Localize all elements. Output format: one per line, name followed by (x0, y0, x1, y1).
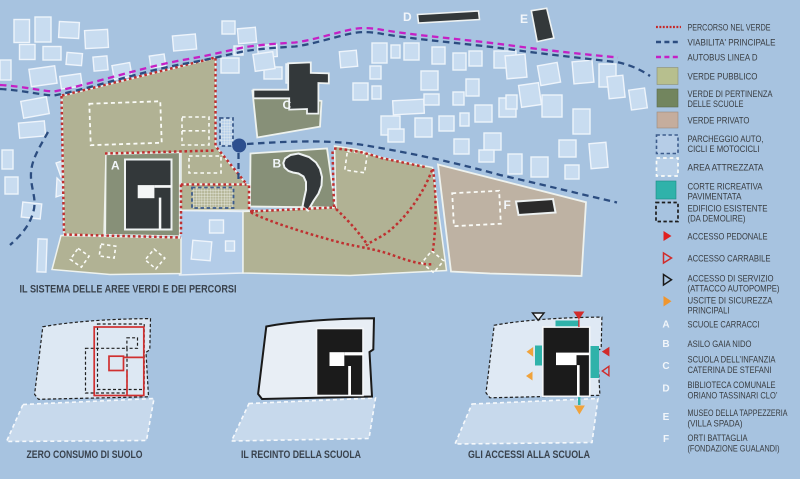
svg-text:E: E (663, 412, 670, 423)
svg-text:F: F (663, 434, 669, 445)
svg-text:(DA DEMOLIRE): (DA DEMOLIRE) (688, 214, 746, 224)
svg-text:(FONDAZIONE GUALANDI): (FONDAZIONE GUALANDI) (688, 444, 780, 454)
svg-text:F: F (504, 198, 511, 212)
svg-text:E: E (520, 12, 528, 26)
svg-text:IL RECINTO DELLA SCUOLA: IL RECINTO DELLA SCUOLA (241, 449, 361, 461)
svg-text:ORIANO TASSINARI CLO’: ORIANO TASSINARI CLO’ (688, 391, 778, 401)
svg-text:CORTE RICREATIVA: CORTE RICREATIVA (688, 182, 763, 192)
svg-text:D: D (403, 10, 412, 24)
svg-text:D: D (662, 384, 669, 395)
svg-text:PAVIMENTATA: PAVIMENTATA (688, 192, 742, 202)
svg-text:B: B (662, 339, 669, 350)
svg-text:ACCESSO CARRABILE: ACCESSO CARRABILE (688, 254, 771, 264)
svg-text:VERDE PRIVATO: VERDE PRIVATO (688, 116, 750, 126)
svg-text:AREA ATTREZZATA: AREA ATTREZZATA (688, 163, 764, 173)
svg-text:ACCESSO DI SERVIZIO: ACCESSO DI SERVIZIO (688, 274, 774, 284)
svg-text:A: A (111, 159, 120, 173)
svg-text:PRINCIPALI: PRINCIPALI (688, 306, 730, 316)
svg-text:C: C (283, 98, 292, 112)
svg-text:VERDE DI PERTINENZA: VERDE DI PERTINENZA (688, 89, 773, 99)
svg-text:SCUOLE CARRACCI: SCUOLE CARRACCI (688, 320, 760, 330)
svg-text:A: A (662, 320, 669, 331)
svg-text:CATERINA DE STEFANI: CATERINA DE STEFANI (688, 365, 772, 375)
svg-text:AUTOBUS LINEA D: AUTOBUS LINEA D (688, 53, 758, 63)
svg-text:DELLE SCUOLE: DELLE SCUOLE (688, 99, 744, 109)
svg-text:VIABILITA' PRINCIPALE: VIABILITA' PRINCIPALE (688, 38, 776, 48)
svg-text:CICLI E MOTOCICLI: CICLI E MOTOCICLI (688, 144, 760, 154)
svg-text:IL SISTEMA DELLE AREE VERDI E: IL SISTEMA DELLE AREE VERDI E DEI PERCOR… (20, 284, 237, 296)
svg-text:PARCHEGGIO AUTO,: PARCHEGGIO AUTO, (688, 134, 764, 144)
svg-text:B: B (273, 157, 282, 171)
svg-text:(ATTACCO AUTOPOMPE): (ATTACCO AUTOPOMPE) (688, 284, 780, 294)
svg-text:ORTI BATTAGLIA: ORTI BATTAGLIA (688, 433, 748, 443)
svg-text:BIBLIOTECA COMUNALE: BIBLIOTECA COMUNALE (688, 380, 776, 390)
svg-text:USCITE DI SICUREZZA: USCITE DI SICUREZZA (688, 296, 773, 306)
svg-text:ZERO CONSUMO DI SUOLO: ZERO CONSUMO DI SUOLO (27, 449, 143, 461)
svg-text:VERDE PUBBLICO: VERDE PUBBLICO (688, 72, 758, 82)
svg-text:MUSEO DELLA TAPPEZZERIA: MUSEO DELLA TAPPEZZERIA (688, 408, 788, 418)
svg-text:ASILO GAIA NIDO: ASILO GAIA NIDO (688, 339, 752, 349)
svg-text:GLI ACCESSI ALLA SCUOLA: GLI ACCESSI ALLA SCUOLA (468, 449, 590, 461)
svg-text:ACCESSO PEDONALE: ACCESSO PEDONALE (688, 232, 768, 242)
svg-text:EDIFICIO ESISTENTE: EDIFICIO ESISTENTE (688, 204, 768, 214)
svg-text:C: C (662, 361, 669, 372)
svg-text:(VILLA SPADA): (VILLA SPADA) (688, 419, 743, 429)
svg-text:SCUOLA DELL’INFANZIA: SCUOLA DELL’INFANZIA (688, 355, 776, 365)
svg-text:PERCORSO NEL VERDE: PERCORSO NEL VERDE (688, 23, 771, 33)
